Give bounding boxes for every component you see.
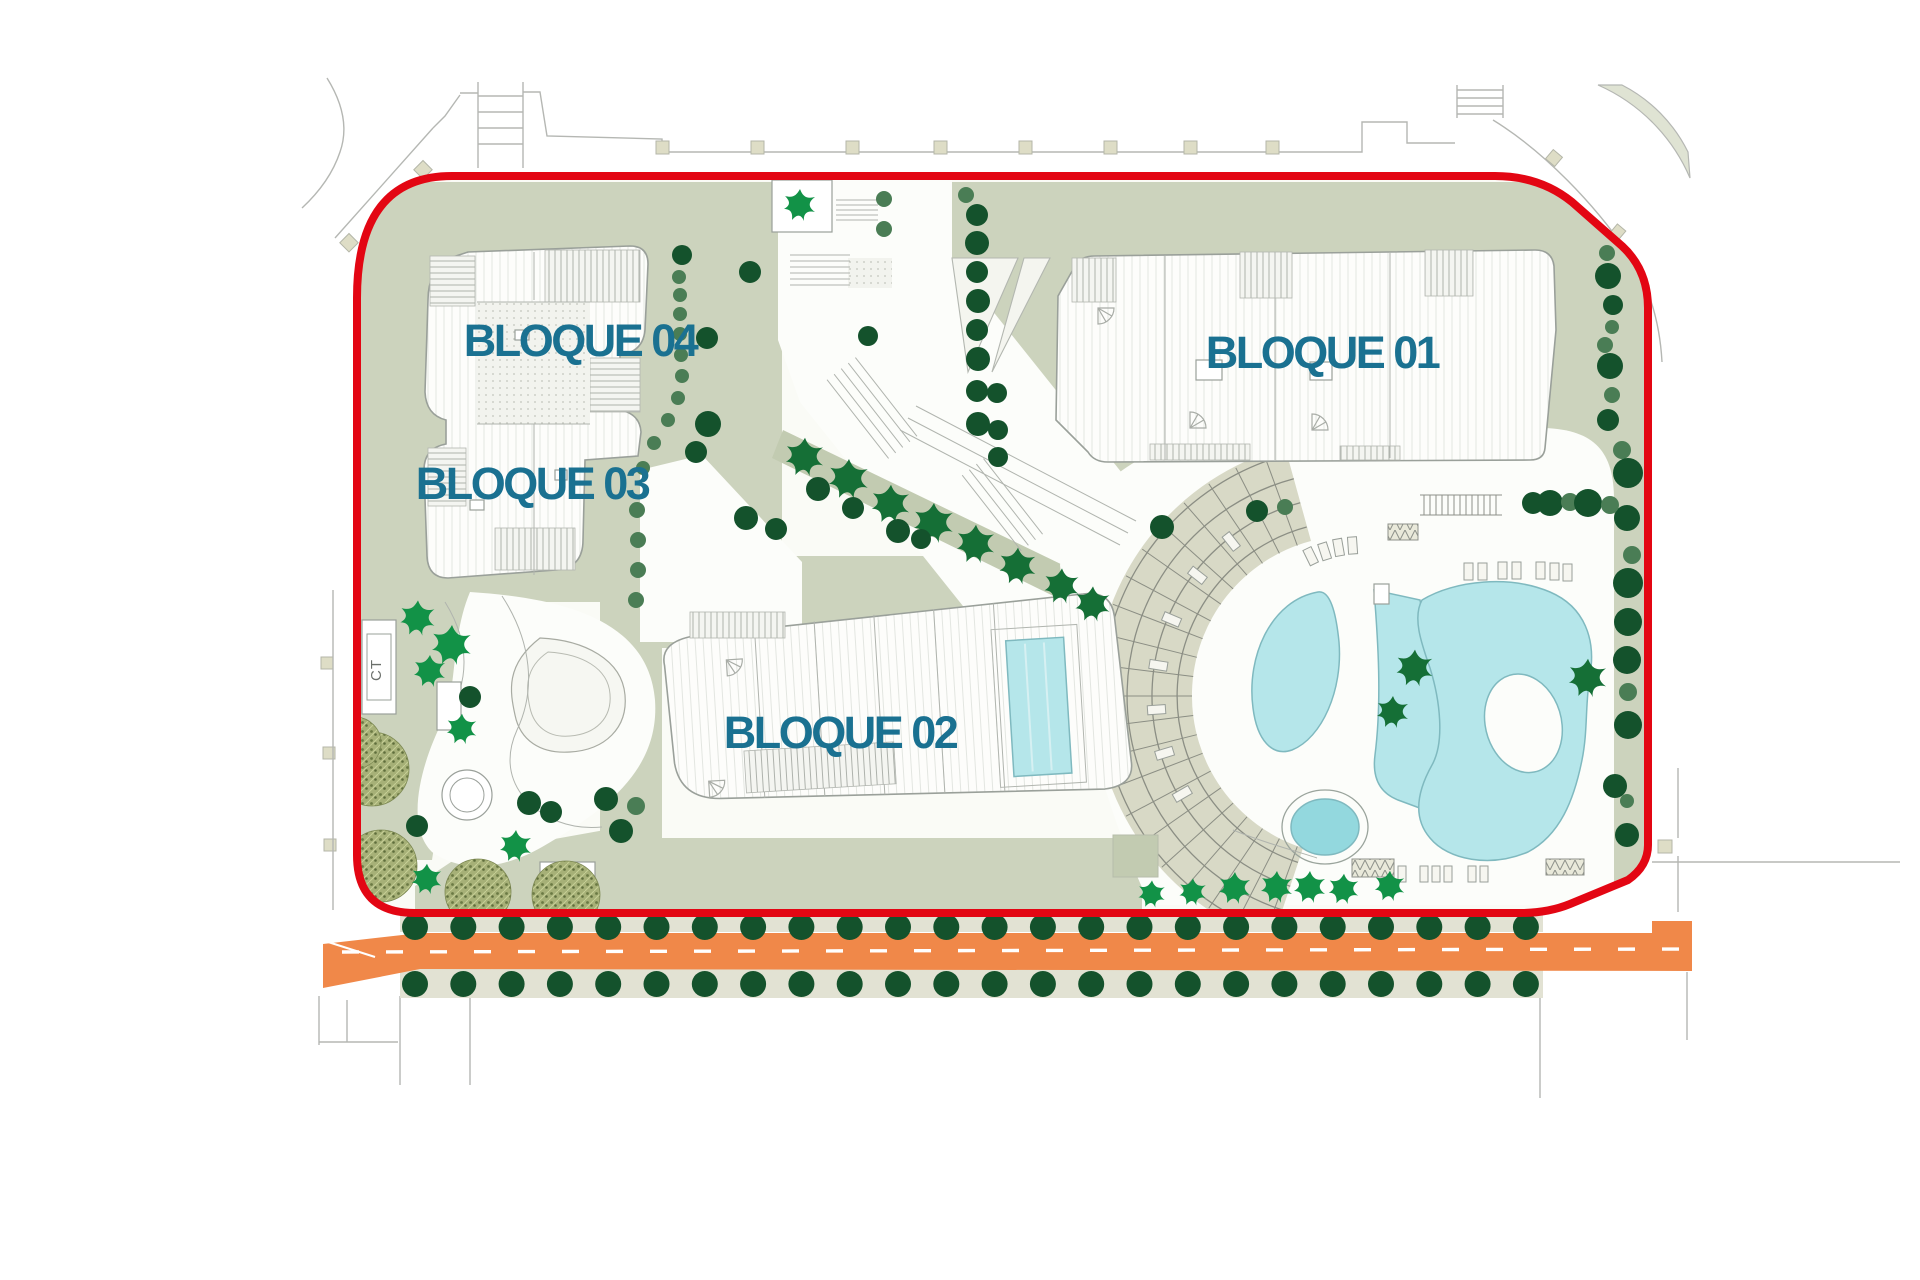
pergola-trellis-icon [1546,859,1584,875]
bloque-03-label: BLOQUE 03 [416,458,650,509]
bloque-04-label: BLOQUE 04 [464,315,699,366]
pergola-trellis-icon [1352,859,1394,877]
bloque-02-rooftop-pool [1006,637,1072,776]
pergola-trellis-icon [1388,524,1418,540]
ct-label: CT [368,659,385,681]
bloque-02-label: BLOQUE 02 [724,707,958,758]
pool-ladder-platform [1374,584,1389,604]
bloque-01-label: BLOQUE 01 [1206,327,1440,378]
site-plan-canvas: CT [0,0,1920,1280]
site-plan-svg: CT [0,0,1920,1280]
round-spa-pool [1291,799,1359,855]
avenue-road [323,914,1692,998]
